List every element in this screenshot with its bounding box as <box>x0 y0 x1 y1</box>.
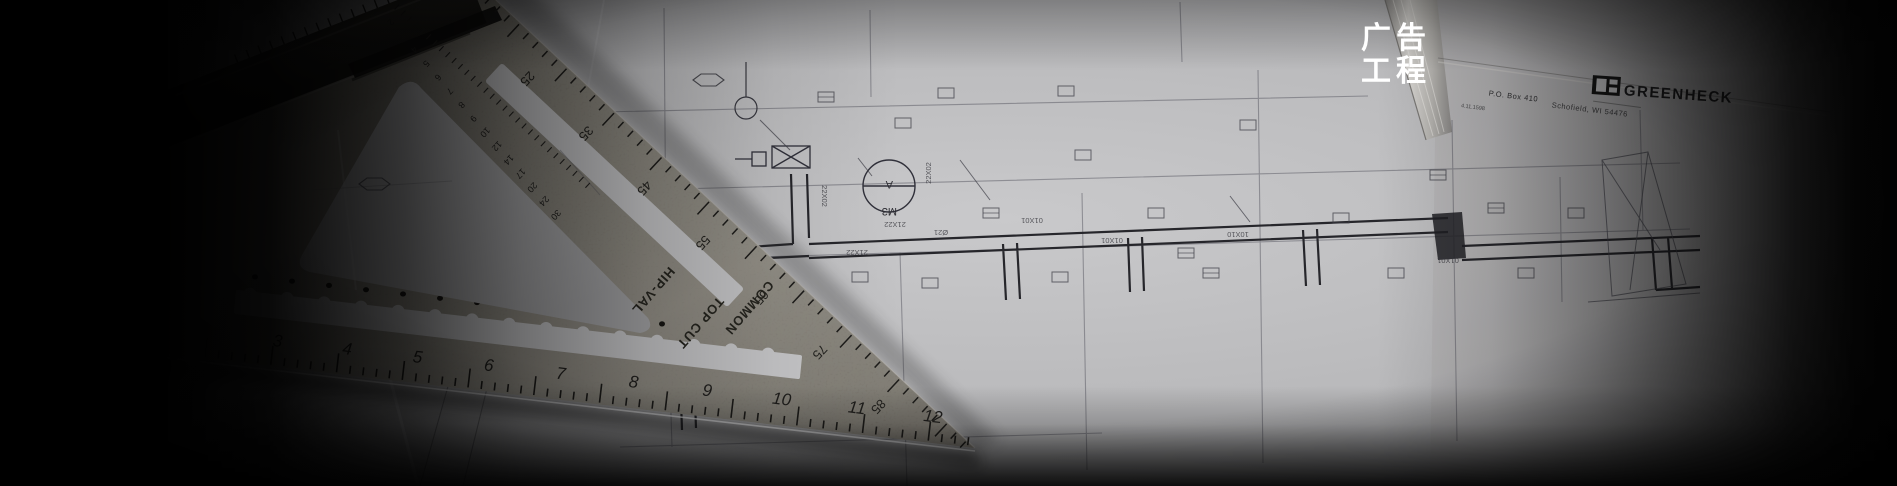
duct-size-label: 22X02 <box>820 185 829 207</box>
duct-size-label: 22X02 <box>924 162 933 184</box>
duct-size-label: 01X01 <box>1437 256 1459 265</box>
hero-banner: A M3 21X22Ø2101X0121X2201X0122X0222X0210… <box>0 0 1897 486</box>
duct-elbow <box>1432 212 1466 260</box>
scene-svg: A M3 21X22Ø2101X0121X2201X0122X0222X0210… <box>0 0 1897 486</box>
duct-size-label: 01X01 <box>1021 216 1043 225</box>
duct-size-label: 01X01 <box>1101 236 1123 245</box>
duct-size-label: 21X22 <box>884 220 906 229</box>
banner-slogan: 广告 工程 <box>1361 22 1431 88</box>
fan-tag-top: A <box>885 178 893 190</box>
ruler-number: 10 <box>771 389 793 410</box>
brand-logo-icon <box>1592 75 1621 96</box>
duct-size-label: 10X10 <box>1227 230 1249 239</box>
duct-size-label: 21X22 <box>846 248 868 257</box>
slogan-line-1: 广告 <box>1361 22 1431 55</box>
duct-size-label: Ø21 <box>934 228 948 237</box>
ruler-number: 12 <box>922 406 944 427</box>
fan-tag-bottom: M3 <box>882 205 897 217</box>
slogan-line-2: 工程 <box>1361 55 1431 88</box>
ruler-number: 11 <box>847 397 867 418</box>
